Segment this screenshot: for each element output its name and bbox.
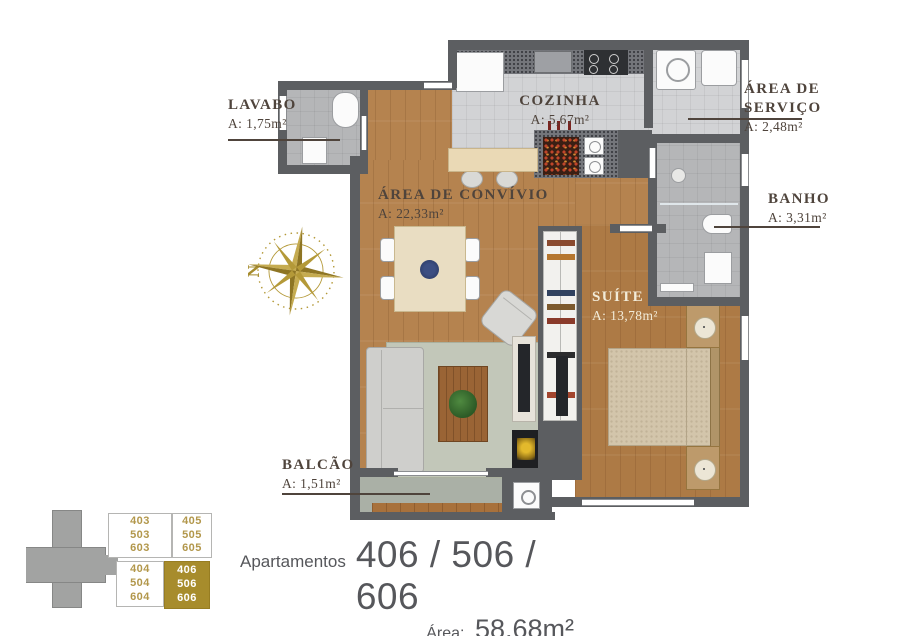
shower-glass-divider (660, 203, 738, 205)
wall-living-left (350, 156, 360, 480)
key-plan-unit-406-highlighted: 406 506 606 (164, 561, 210, 609)
prep-sink-1 (584, 137, 604, 155)
label-balcao: BALCÃO A: 1,51m² (282, 456, 355, 493)
wall-balcony-front (350, 512, 555, 520)
area-value: 58,68m² (475, 614, 574, 636)
bathroom-vanity (704, 252, 732, 284)
wall-balcony-stub-right (486, 468, 550, 477)
lavabo-area: A: 1,75m² (228, 116, 297, 133)
banho-area: A: 3,31m² (768, 210, 830, 227)
balcao-name: BALCÃO (282, 456, 355, 475)
floorplan-page: LAVABO A: 1,75m² COZINHA A: 5,67m² ÁREA … (0, 0, 900, 636)
flower-picture (512, 430, 541, 470)
cooktop (584, 50, 628, 75)
apartments-line: Apartamentos 406 / 506 / 606 (240, 534, 574, 618)
bathroom-shelf (660, 283, 694, 292)
banho-name: BANHO (768, 190, 830, 209)
compass-north-label: N (245, 264, 263, 277)
label-servico: ÁREA DE SERVIÇO A: 2,48m² (744, 80, 900, 135)
key-plan-unit-405: 405 505 605 (172, 513, 212, 558)
key-plan-unit-403: 403 503 603 (108, 513, 172, 558)
washing-machine (656, 50, 696, 90)
kitchen-cabinet-block (618, 130, 652, 178)
dining-chair-4 (464, 276, 480, 300)
bar-counter (448, 148, 538, 172)
balcony-heater-unit (513, 482, 540, 509)
suite-name: SUÍTE (592, 288, 658, 307)
wall-top (448, 40, 749, 50)
suite-window (582, 499, 694, 506)
tv-living (518, 344, 530, 412)
pantry-rack (543, 137, 579, 175)
label-lavabo: LAVABO A: 1,75m² (228, 96, 297, 133)
headboard (710, 346, 720, 448)
wall-bathroom-top (648, 134, 749, 143)
key-plan-unit-404: 404 504 604 (116, 561, 164, 607)
laundry-tank (701, 50, 737, 86)
bathroom-door-opening (649, 148, 656, 178)
fridge (456, 52, 504, 92)
compass-rose-icon: N (245, 220, 347, 322)
label-banho: BANHO A: 3,31m² (768, 190, 830, 227)
label-convivio: ÁREA DE CONVÍVIO A: 22,33m² (378, 186, 549, 223)
wall-lavabo-bottom (278, 165, 368, 174)
balcao-area: A: 1,51m² (282, 476, 355, 493)
cozinha-name: COZINHA (500, 92, 620, 111)
convivio-area: A: 22,33m² (378, 206, 549, 223)
label-suite: SUÍTE A: 13,78m² (592, 288, 658, 325)
balcony-sliding-door (394, 471, 488, 476)
servico-area: A: 2,48m² (744, 119, 900, 136)
leader-banho (714, 226, 820, 228)
area-label: Área: (426, 625, 464, 636)
apartment-numbers: 406 / 506 / 606 (356, 534, 574, 618)
bathroom-window (741, 154, 749, 186)
kitchen-sink (534, 51, 572, 73)
suite-area: A: 13,78m² (592, 308, 658, 325)
nightstand-1 (686, 304, 720, 348)
cozinha-area: A: 5,67m² (500, 112, 620, 129)
shower-head (671, 168, 686, 183)
bed (608, 348, 712, 446)
lavabo-sink (302, 137, 327, 164)
convivio-name: ÁREA DE CONVÍVIO (378, 186, 549, 205)
dining-chair-3 (464, 238, 480, 262)
plant (449, 390, 477, 418)
nightstand-2 (686, 446, 720, 490)
key-plan: 403 503 603 405 505 605 404 504 604 406 … (18, 505, 223, 620)
leader-servico (688, 118, 802, 120)
servico-name: ÁREA DE SERVIÇO (744, 80, 900, 118)
apartments-prefix: Apartamentos (240, 552, 346, 572)
label-cozinha: COZINHA A: 5,67m² (500, 92, 620, 129)
lavabo-name: LAVABO (228, 96, 297, 115)
tv-suite (556, 356, 568, 416)
footer-title: Apartamentos 406 / 506 / 606 Área: 58,68… (240, 534, 574, 636)
entry-hall-floor (360, 88, 456, 168)
bathroom-toilet (702, 214, 732, 234)
leader-lavabo (228, 139, 340, 141)
lavabo-toilet (332, 92, 359, 128)
wall-kitchen-service-divider (644, 40, 653, 128)
lavabo-door-opening (361, 116, 367, 150)
prep-sink-2 (584, 157, 604, 175)
table-centerpiece (420, 260, 439, 279)
key-plan-core-neck (80, 555, 118, 575)
wall-lavabo-top (278, 81, 368, 90)
suite-side-window (741, 316, 749, 360)
suite-door-opening (620, 225, 652, 232)
leader-balcao (282, 493, 430, 495)
wall-bathroom-bottom (648, 297, 749, 306)
sofa (366, 347, 424, 473)
entry-door-opening (424, 82, 452, 89)
